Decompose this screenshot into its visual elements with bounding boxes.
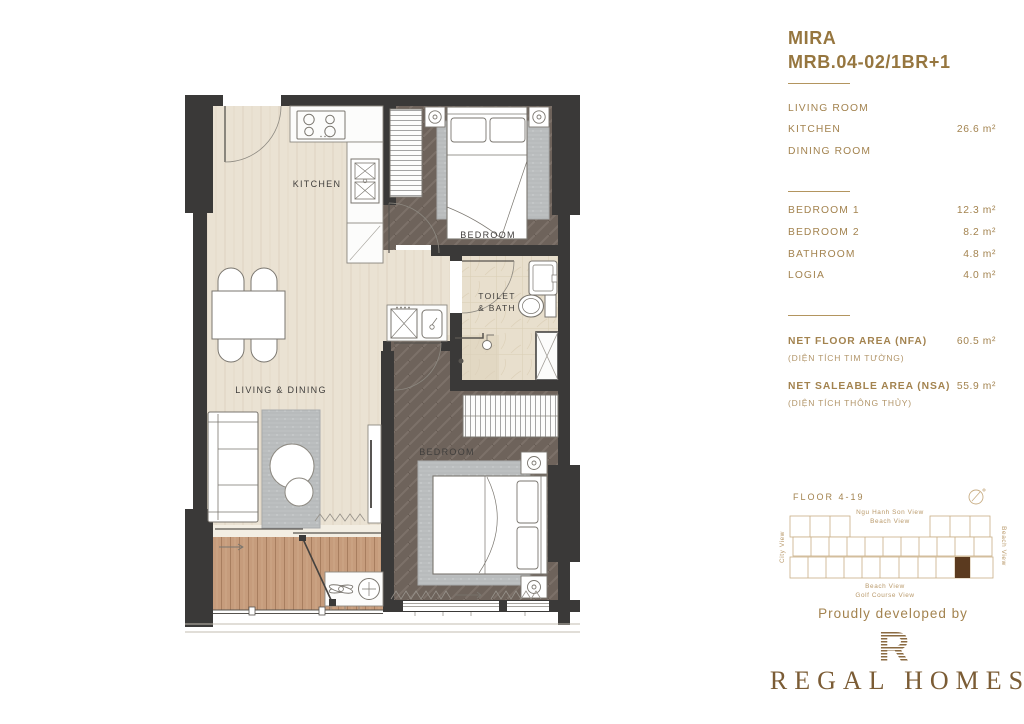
developer-tagline: Proudly developed by	[760, 606, 1024, 621]
room-label: BEDROOM 2	[788, 227, 860, 238]
room-value: 4.0 m²	[963, 270, 996, 281]
floor-range-label: FLOOR 4-19	[793, 492, 865, 502]
view-label-bottom-1: Beach View	[865, 583, 905, 590]
room-label: KITCHEN	[788, 124, 841, 135]
utility-sink-icon	[422, 310, 442, 338]
room-label: BEDROOM 1	[788, 205, 860, 216]
nsa-label: NET SALEABLE AREA (NSA)	[788, 381, 950, 392]
entry-opening	[223, 95, 281, 106]
nsa-row: NET SALEABLE AREA (NSA) 55.9 m²	[788, 381, 996, 392]
brand-name: REGAL HOMES	[760, 666, 1024, 696]
view-label-left: City View	[779, 531, 786, 563]
tv-console	[368, 425, 381, 523]
nfa-label: NET FLOOR AREA (NFA)	[788, 336, 927, 347]
room-label: DINING ROOM	[788, 146, 871, 157]
regal-homes-logo-icon: R	[869, 626, 917, 664]
room-value: 12.3 m²	[957, 205, 996, 216]
unit-title: MIRA MRB.04-02/1BR+1	[788, 26, 951, 74]
toilet-icon	[519, 295, 557, 317]
room-row: DINING ROOM	[788, 146, 996, 157]
sofa	[208, 412, 258, 522]
room-row: BEDROOM 1 12.3 m²	[788, 205, 996, 216]
unit-name: MIRA	[788, 26, 951, 50]
service-shaft	[536, 332, 558, 380]
kitchen-sink-icon	[351, 159, 379, 203]
vanity-sink-icon	[529, 261, 557, 295]
laundry-alcove	[387, 305, 447, 341]
label-living-dining: LIVING & DINING	[235, 385, 327, 395]
nsa-sub: (DIỆN TÍCH THÔNG THỦY)	[788, 398, 912, 408]
room-row: BATHROOM 4.8 m²	[788, 249, 996, 260]
view-label-top-2: Beach View	[870, 518, 910, 525]
nfa-value: 60.5 m²	[957, 336, 996, 347]
divider	[788, 83, 850, 84]
room-label: LIVING ROOM	[788, 103, 869, 114]
key-plan: FLOOR 4-19 Ngu Hanh Son View Beach View …	[778, 486, 1010, 602]
bed-2	[433, 476, 547, 574]
bed-1	[447, 107, 527, 239]
fridge-icon	[347, 223, 383, 263]
unit-highlight	[955, 557, 970, 578]
room-value: 8.2 m²	[963, 227, 996, 238]
coffee-table-small	[285, 478, 313, 506]
room-label: BATHROOM	[788, 249, 856, 260]
room-row: KITCHEN 26.6 m²	[788, 124, 996, 135]
view-label-bottom-2: Golf Course View	[855, 592, 914, 599]
label-toilet-1: TOILET	[478, 291, 515, 301]
floorplan-brochure-page: KITCHEN BEDROOM TOILET & BATH LIVING & D…	[0, 0, 1024, 724]
wardrobe-1	[390, 109, 422, 197]
room-row: LIVING ROOM	[788, 103, 996, 114]
compass-icon	[969, 488, 986, 504]
room-value: 26.6 m²	[957, 124, 996, 135]
divider	[788, 191, 850, 192]
label-toilet-2: & BATH	[478, 303, 516, 313]
round-table-icon	[359, 579, 380, 600]
room-label: LOGIA	[788, 270, 825, 281]
label-bedroom-1: BEDROOM	[460, 230, 516, 240]
room-value: 4.8 m²	[963, 249, 996, 260]
view-label-top-1: Ngu Hanh Son View	[856, 509, 924, 516]
nfa-sub: (DIỆN TÍCH TIM TƯỜNG)	[788, 353, 904, 363]
label-bedroom-2: BEDROOM	[419, 447, 475, 457]
divider	[788, 315, 850, 316]
view-label-right: Beach View	[1000, 526, 1007, 566]
nfa-row: NET FLOOR AREA (NFA) 60.5 m²	[788, 336, 996, 347]
room-row: BEDROOM 2 8.2 m²	[788, 227, 996, 238]
room-row: LOGIA 4.0 m²	[788, 270, 996, 281]
nsa-value: 55.9 m²	[957, 381, 996, 392]
unit-code: MRB.04-02/1BR+1	[788, 50, 951, 74]
floor-plan: KITCHEN BEDROOM TOILET & BATH LIVING & D…	[185, 95, 583, 643]
label-kitchen: KITCHEN	[293, 179, 342, 189]
washer-icon	[391, 307, 417, 338]
